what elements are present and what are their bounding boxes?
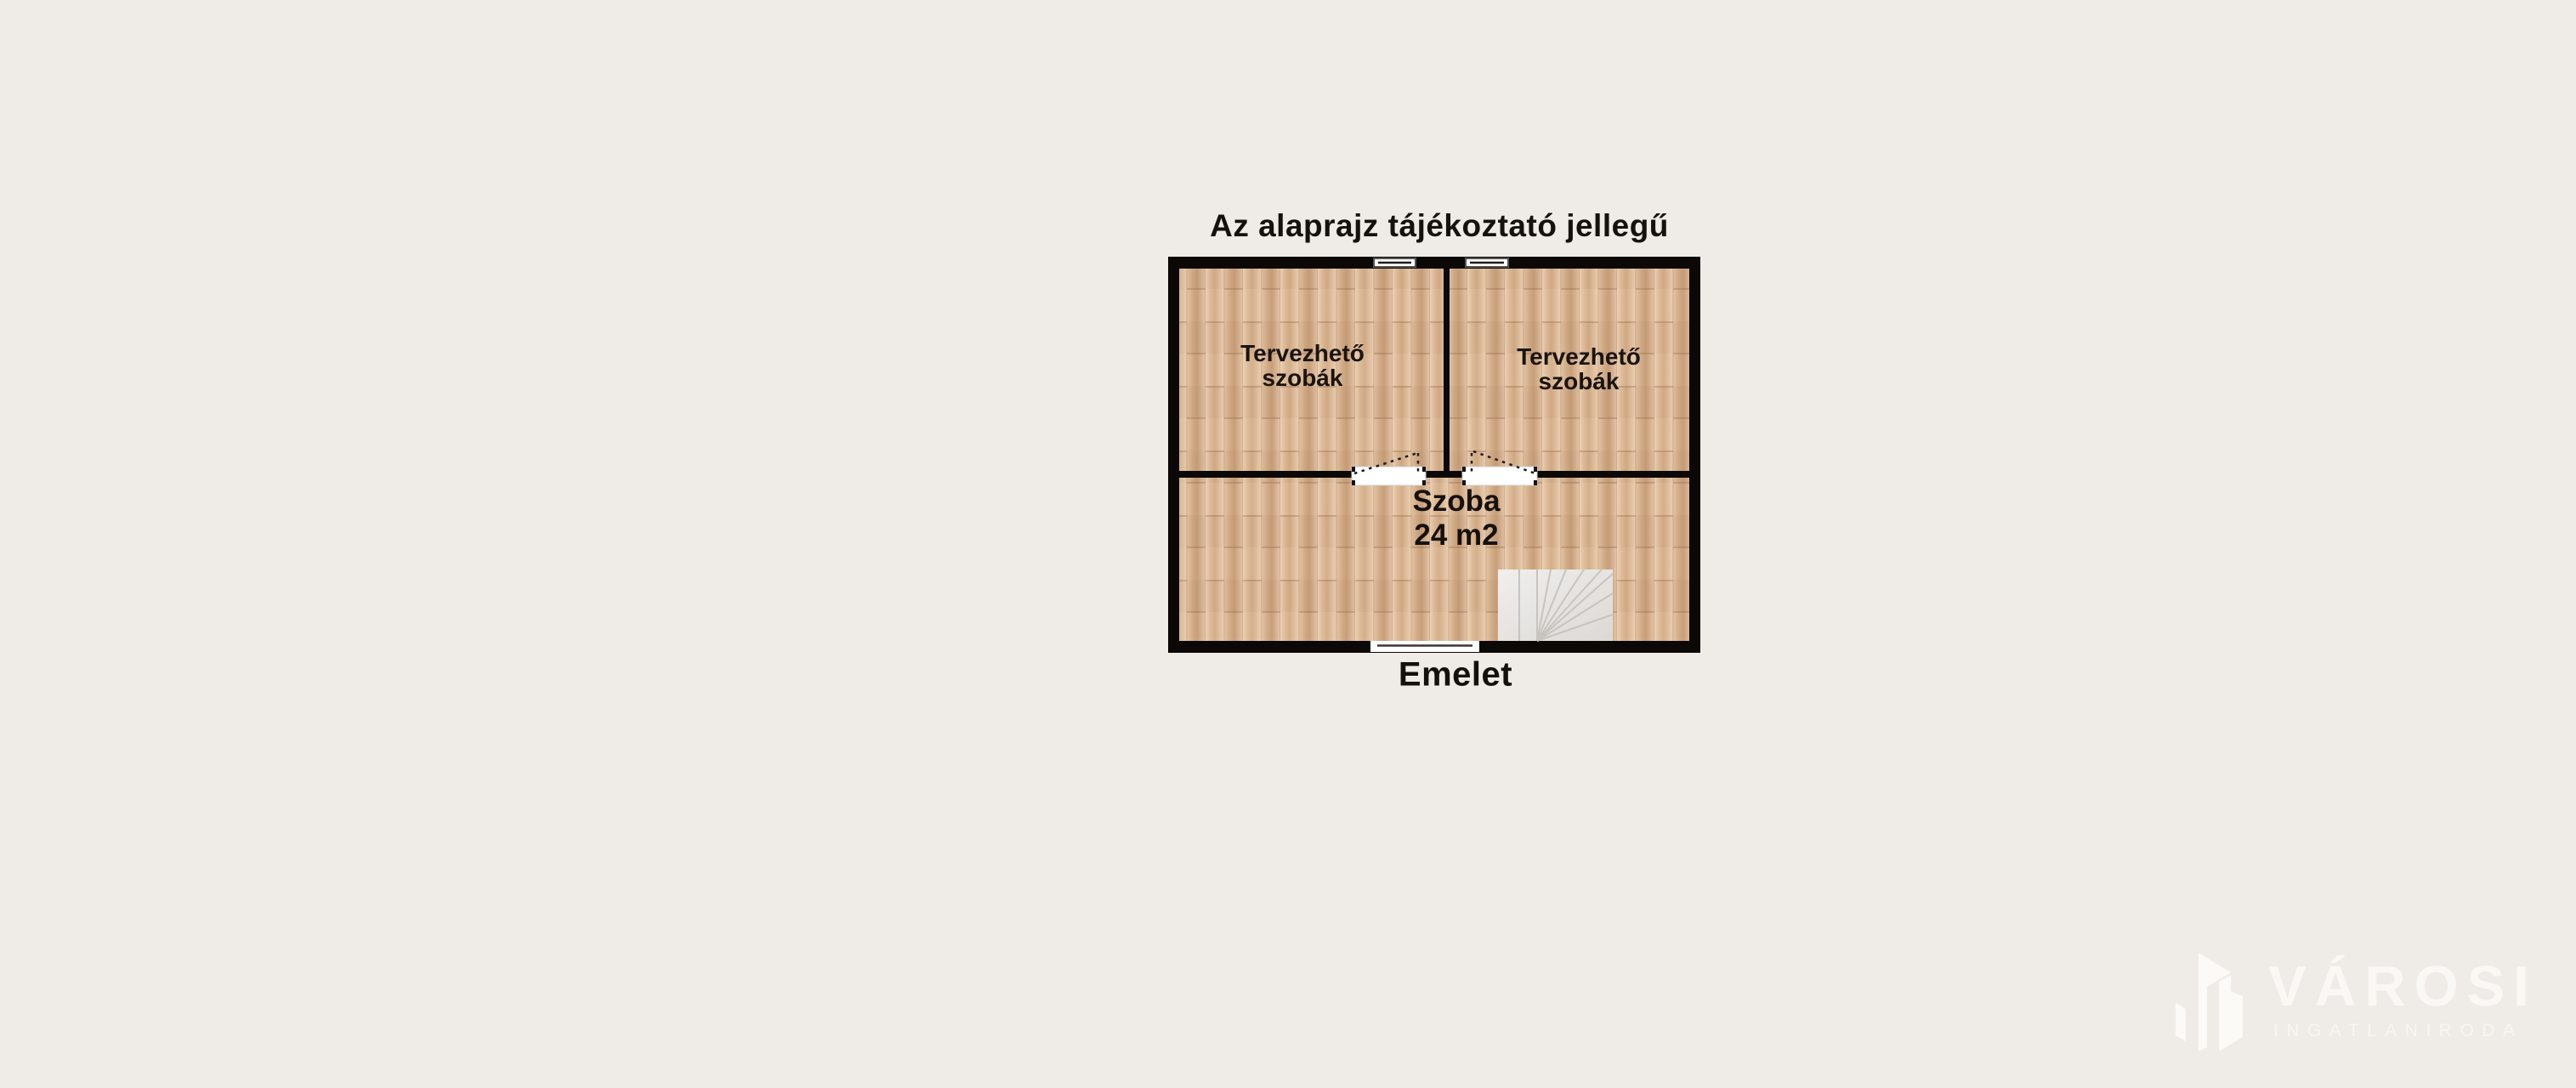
- floor-plan-page: Az alaprajz tájékoztató jellegű: [0, 0, 2576, 1088]
- stairs: [1498, 569, 1613, 641]
- brand-name: VÁROSI: [2268, 957, 2538, 1017]
- room-label-top-right: Tervezhető szobák: [1517, 344, 1641, 394]
- disclaimer-title: Az alaprajz tájékoztató jellegű: [1210, 208, 1669, 244]
- room-label-top-left: Tervezhető szobák: [1240, 341, 1365, 390]
- brand-logo-icon: [2173, 949, 2246, 1054]
- window-top-left: [1373, 258, 1416, 268]
- window-bottom: [1370, 641, 1479, 652]
- window-top-right: [1465, 258, 1509, 268]
- room-label-bottom: Szoba 24 m2: [1412, 484, 1500, 552]
- brand-tagline: INGATLANIRODA: [2273, 1021, 2522, 1041]
- floor-plan-drawing: [1168, 257, 1700, 653]
- floor-name-label: Emelet: [1399, 656, 1512, 694]
